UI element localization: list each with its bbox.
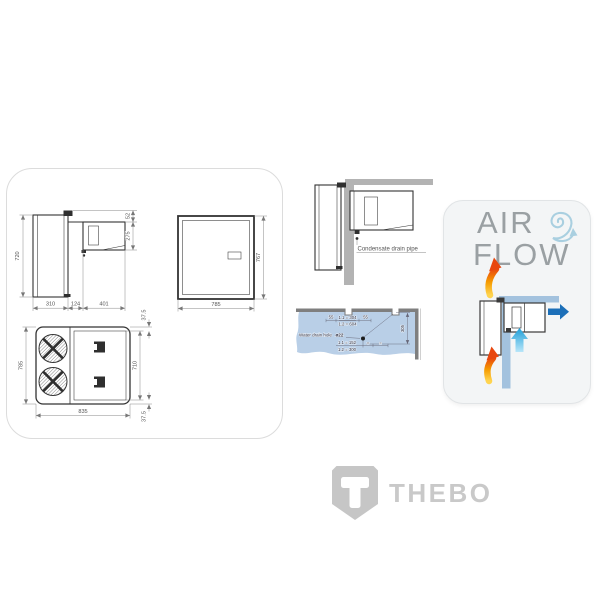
dim-label-wall-thickness: 124: [71, 302, 80, 308]
dim-label-pitch-model1: 1.1 = 304: [338, 315, 357, 320]
mount-bracket: [64, 211, 73, 217]
dim-label-flange-top: 37.5: [142, 310, 148, 321]
page-background: 720 310 124 401 52 275: [0, 0, 600, 600]
unit-panel: [480, 301, 501, 355]
dim-label-depth-inner: 310: [46, 302, 55, 308]
water-drain-hole-label: Water drain hole: [299, 333, 332, 338]
airflow-card: AIR FLOW: [443, 200, 591, 404]
dim-label-top-width: 835: [78, 409, 87, 415]
front-view-drawing: 785 767: [178, 216, 267, 312]
air-outlet-arrow: [548, 304, 569, 320]
ceiling: [345, 179, 433, 185]
condensate-drain-pipe-label: Condensate drain pipe: [358, 247, 419, 253]
panel-joint-notch-right: [392, 309, 399, 316]
water-drain-hole-point: [361, 337, 365, 341]
side-wall-edge: [415, 309, 419, 360]
dim-label-offset-right: 55: [363, 315, 368, 320]
condensate-drain-point: [356, 237, 359, 240]
air-swirl-icon: [536, 202, 582, 248]
dim-label-bracket-offset: 52: [126, 213, 132, 219]
fan-2: [39, 368, 67, 396]
dim-label-depth-outer: 401: [99, 302, 108, 308]
logo-shield-icon: [331, 465, 379, 521]
dim-label-top-depth: 785: [19, 361, 25, 370]
dim-label-body-width: 710: [133, 361, 139, 370]
panel-joint-notch-left: [345, 309, 352, 316]
dim-label-width: 785: [211, 302, 220, 308]
side-view-drawing: 720 310 124 401 52 275: [15, 211, 137, 312]
airflow-title-air: AIR: [477, 206, 535, 239]
water-drain-hole-diameter: ø22: [336, 333, 344, 338]
hot-air-arrow-top: [489, 258, 502, 296]
water-drain-top-drawing: 55 1.1 = 304 1.2 = 604 55 305 Water drai…: [292, 302, 430, 366]
logo-brand-text: THEBO: [389, 478, 493, 509]
dim-label-offset-left: 55: [329, 315, 334, 320]
dim-label-flange-bottom: 37.5: [142, 411, 148, 422]
dim-label-edge-distance: 305: [400, 324, 405, 332]
dim-label-center-model1: 1.1 = 152: [338, 340, 357, 345]
dimensional-drawings: 720 310 124 401 52 275: [6, 168, 283, 439]
dim-label-unit-height: 275: [126, 231, 132, 240]
fan-1: [39, 335, 67, 363]
ceiling-blue: [499, 296, 559, 303]
airflow-unit-drawing: [451, 253, 586, 403]
dim-label-center-model2: 1.2 = 300: [338, 347, 357, 352]
dim-label-pitch-model2: 1.2 = 604: [338, 322, 357, 327]
top-view-drawing: 785 835 710 37.5 37.5: [19, 310, 153, 422]
dim-label-height: 720: [15, 251, 21, 260]
dim-label-front-height: 767: [256, 253, 262, 262]
wall-mount-section-drawing: Condensate drain pipe: [300, 172, 435, 287]
